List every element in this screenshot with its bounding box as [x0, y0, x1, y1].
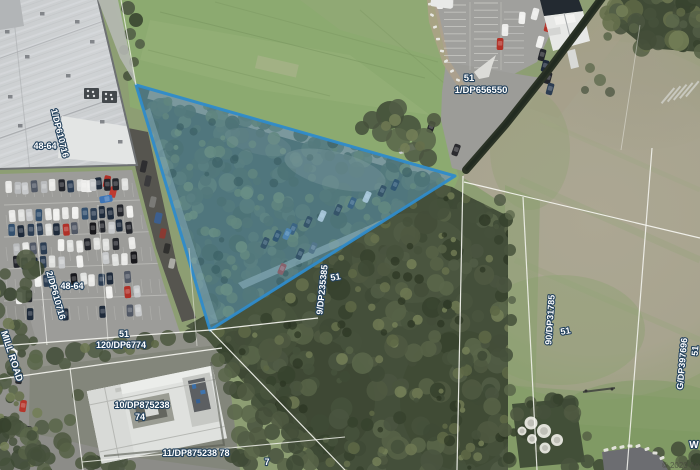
svg-text:7: 7 [264, 457, 269, 467]
svg-text:51: 51 [119, 329, 129, 339]
svg-text:51: 51 [690, 345, 700, 356]
svg-text:51: 51 [560, 325, 572, 337]
svg-text:© 2020 Aer: © 2020 Aer [662, 461, 700, 470]
svg-text:120/DP6774: 120/DP6774 [96, 340, 146, 350]
svg-text:10/DP875238: 10/DP875238 [114, 400, 169, 410]
svg-text:51: 51 [330, 271, 342, 283]
svg-text:11/DP875238 78: 11/DP875238 78 [162, 448, 229, 458]
svg-text:W: W [689, 440, 699, 451]
svg-text:74: 74 [135, 412, 145, 422]
svg-text:48-64: 48-64 [60, 281, 83, 291]
svg-text:51: 51 [464, 73, 475, 84]
svg-text:1/DP656550: 1/DP656550 [455, 85, 508, 96]
svg-text:48-64: 48-64 [33, 141, 56, 151]
